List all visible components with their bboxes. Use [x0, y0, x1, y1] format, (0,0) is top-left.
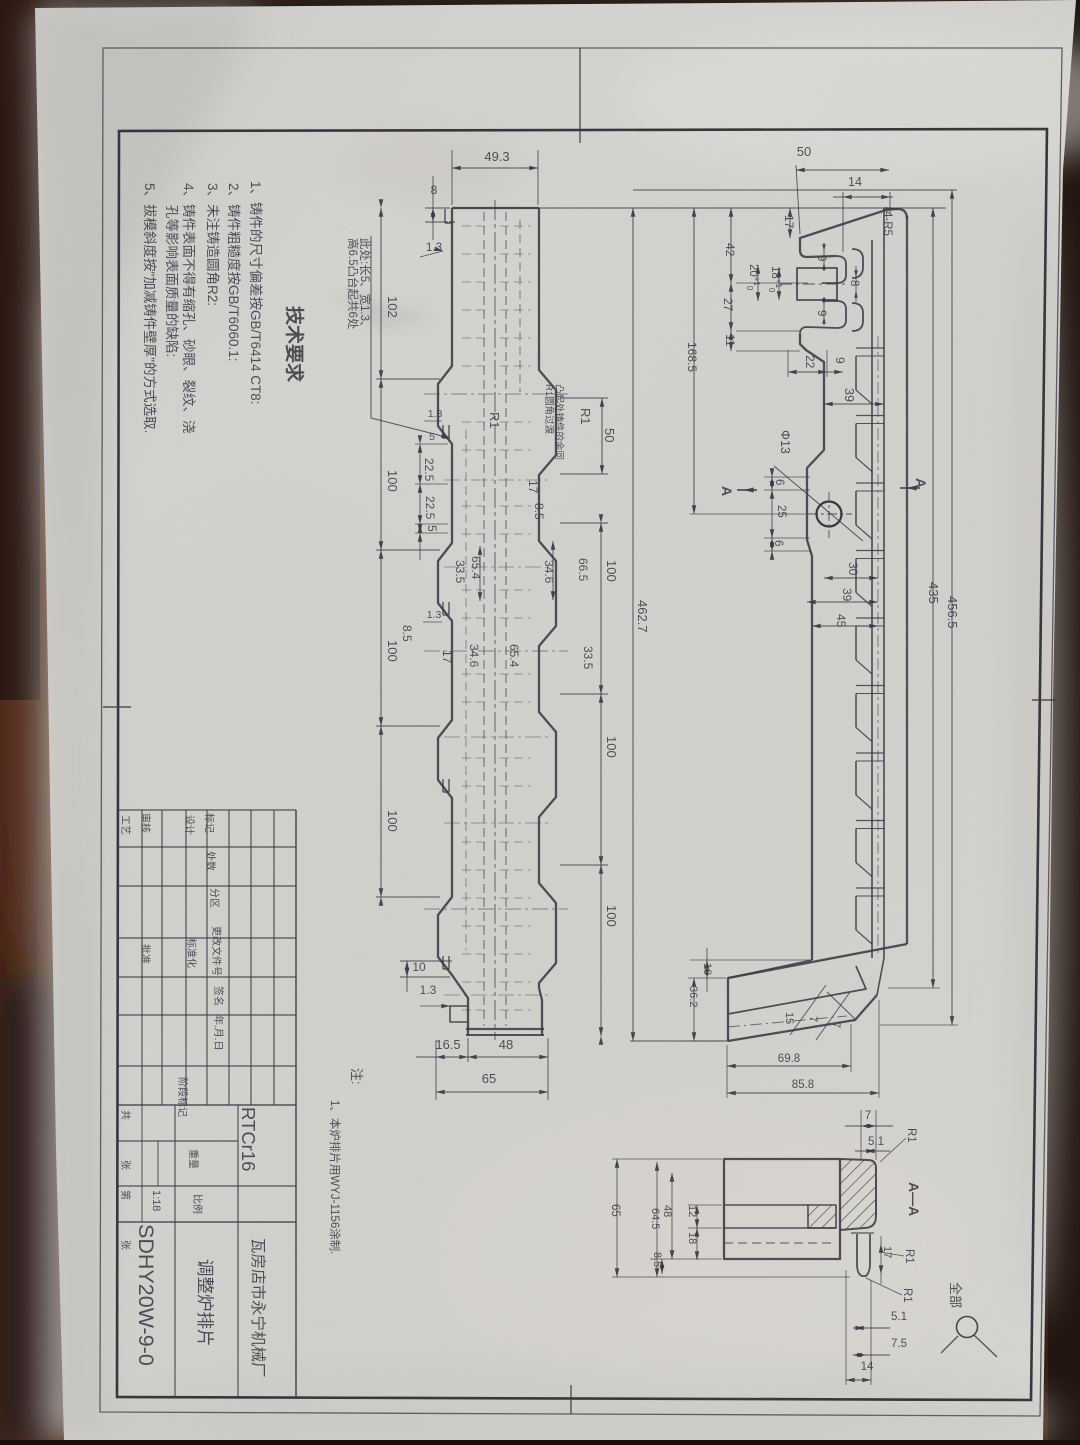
svg-text:处数: 处数 — [204, 851, 217, 871]
svg-text:50: 50 — [797, 144, 811, 159]
svg-text:更改文件号: 更改文件号 — [210, 926, 223, 976]
svg-text:85.8: 85.8 — [792, 1079, 814, 1091]
svg-text:7: 7 — [807, 1016, 819, 1022]
svg-text:R1: R1 — [903, 1249, 915, 1264]
svg-text:100: 100 — [604, 560, 619, 582]
svg-text:1.3: 1.3 — [428, 408, 443, 420]
svg-text:第: 第 — [119, 1190, 132, 1200]
svg-text:高6.5凸台起共6处: 高6.5凸台起共6处 — [346, 238, 360, 330]
svg-text:100: 100 — [385, 470, 400, 492]
svg-text:注:: 注: — [349, 1068, 364, 1085]
svg-text:5.1: 5.1 — [891, 1311, 907, 1323]
svg-text:全部: 全部 — [948, 1282, 963, 1308]
svg-text:64.5: 64.5 — [649, 1208, 661, 1229]
svg-text:462.7: 462.7 — [635, 600, 650, 633]
svg-text:5: 5 — [425, 525, 439, 532]
svg-text:30: 30 — [846, 562, 860, 576]
svg-text:1、本炉排片用WYJ-1156涂制.: 1、本炉排片用WYJ-1156涂制. — [328, 1100, 342, 1254]
svg-text:9: 9 — [833, 357, 847, 364]
svg-text:R1: R1 — [487, 412, 502, 429]
svg-text:27: 27 — [721, 298, 735, 312]
svg-text:14: 14 — [848, 175, 862, 189]
svg-text:5、拔模斜度按"加减铸件壁厚"的方式选取.: 5、拔模斜度按"加减铸件壁厚"的方式选取. — [142, 183, 157, 433]
svg-text:34.6: 34.6 — [467, 644, 481, 668]
svg-text:42: 42 — [723, 243, 737, 257]
svg-text:年.月.日: 年.月.日 — [212, 1015, 225, 1051]
svg-text:标记: 标记 — [203, 813, 215, 833]
svg-text:39: 39 — [840, 588, 854, 602]
svg-text:审核: 审核 — [139, 813, 152, 833]
svg-text:8: 8 — [431, 183, 438, 197]
svg-text:100: 100 — [604, 736, 619, 758]
svg-text:50: 50 — [602, 428, 617, 442]
svg-text:25: 25 — [775, 505, 787, 518]
svg-text:7: 7 — [865, 1110, 871, 1122]
svg-text:8: 8 — [848, 280, 860, 286]
svg-text:阶段标记: 阶段标记 — [176, 1077, 189, 1117]
svg-text:A—A: A—A — [906, 1182, 922, 1216]
svg-text:1、铸件的尺寸偏差按GB/T6414 CT8:: 1、铸件的尺寸偏差按GB/T6414 CT8: — [248, 181, 263, 405]
svg-text:RTCr16: RTCr16 — [238, 1107, 259, 1171]
svg-text:8.5: 8.5 — [532, 503, 546, 520]
svg-text:1.3: 1.3 — [420, 983, 437, 997]
svg-text:9: 9 — [815, 255, 827, 261]
svg-text:4-R5: 4-R5 — [881, 211, 893, 236]
svg-text:17: 17 — [526, 480, 540, 494]
svg-text:5: 5 — [429, 431, 435, 443]
svg-text:2、铸件粗糙度按GB/T6060.1:: 2、铸件粗糙度按GB/T6060.1: — [226, 183, 241, 362]
svg-text:168.5: 168.5 — [685, 342, 699, 372]
svg-text:9: 9 — [815, 310, 827, 316]
svg-text:工艺: 工艺 — [119, 815, 131, 835]
svg-text:1:18: 1:18 — [150, 1190, 162, 1211]
svg-text:4、铸件表面不得有缩孔、砂眼、裂纹、浇: 4、铸件表面不得有缩孔、砂眼、裂纹、浇 — [181, 183, 197, 434]
svg-text:48: 48 — [499, 1037, 513, 1052]
svg-text:比例: 比例 — [191, 1194, 204, 1214]
svg-text:标准化: 标准化 — [185, 938, 198, 968]
svg-text:R1圆角过渡: R1圆角过渡 — [543, 384, 555, 435]
svg-text:65.4: 65.4 — [469, 556, 483, 580]
svg-text:39: 39 — [842, 388, 856, 402]
svg-text:65: 65 — [609, 1204, 621, 1217]
svg-text:8.5: 8.5 — [400, 625, 414, 642]
svg-text:17: 17 — [782, 215, 796, 229]
svg-text:A: A — [913, 478, 929, 488]
svg-text:33.5: 33.5 — [453, 560, 467, 584]
svg-text:5.1: 5.1 — [868, 1136, 884, 1148]
svg-text:重量: 重量 — [187, 1149, 200, 1169]
svg-text:100: 100 — [604, 905, 619, 927]
svg-text:14: 14 — [861, 1361, 874, 1373]
svg-text:孔等影响表面质量的缺陷:: 孔等影响表面质量的缺陷: — [164, 205, 180, 357]
svg-text:69.8: 69.8 — [778, 1053, 800, 1065]
svg-text:7.5: 7.5 — [891, 1338, 907, 1350]
svg-text:65.4: 65.4 — [507, 644, 521, 668]
svg-text:49.3: 49.3 — [484, 149, 509, 164]
svg-text:66.5: 66.5 — [576, 558, 590, 582]
svg-text:100: 100 — [385, 640, 400, 662]
svg-text:102: 102 — [385, 296, 400, 318]
svg-text:22: 22 — [803, 355, 817, 369]
svg-text:设计: 设计 — [183, 815, 196, 835]
svg-text:调整炉排片: 调整炉排片 — [195, 1259, 215, 1347]
svg-text:100: 100 — [385, 810, 400, 832]
svg-text:15: 15 — [783, 1012, 795, 1024]
svg-text:张: 张 — [119, 1240, 131, 1250]
svg-text:分区: 分区 — [208, 888, 220, 908]
svg-text:65: 65 — [482, 1071, 496, 1086]
svg-text:33.5: 33.5 — [581, 646, 595, 670]
svg-text:批准: 批准 — [139, 944, 152, 964]
svg-text:此处:长5、宽1.3、: 此处:长5、宽1.3、 — [358, 238, 372, 333]
svg-text:17: 17 — [440, 650, 454, 664]
svg-text:技术要求: 技术要求 — [283, 306, 306, 383]
svg-text:A: A — [719, 486, 735, 496]
svg-text:22.5: 22.5 — [422, 458, 436, 482]
svg-text:R1: R1 — [901, 1288, 913, 1303]
svg-text:R1: R1 — [578, 408, 593, 425]
svg-text:签名: 签名 — [212, 986, 225, 1006]
svg-text:22.5: 22.5 — [423, 496, 437, 520]
svg-text:张: 张 — [119, 1160, 131, 1170]
svg-text:1.3: 1.3 — [427, 609, 442, 621]
svg-text:16.5: 16.5 — [435, 1037, 460, 1052]
svg-text:36.2: 36.2 — [687, 986, 699, 1007]
svg-text:R1: R1 — [905, 1128, 917, 1143]
svg-text:6: 6 — [773, 479, 785, 485]
svg-text:7: 7 — [830, 1022, 842, 1028]
svg-text:SDHY20W-9-0: SDHY20W-9-0 — [134, 1224, 158, 1366]
svg-text:Φ13: Φ13 — [778, 430, 792, 454]
svg-text:34.6: 34.6 — [542, 560, 556, 584]
svg-text:瓦房店市永宁机械厂: 瓦房店市永宁机械厂 — [249, 1238, 267, 1378]
svg-text:共: 共 — [119, 1110, 131, 1120]
svg-text:10: 10 — [412, 960, 426, 974]
svg-text:48: 48 — [661, 1205, 673, 1217]
svg-text:3、未注铸造圆角R2:: 3、未注铸造圆角R2: — [205, 183, 220, 306]
